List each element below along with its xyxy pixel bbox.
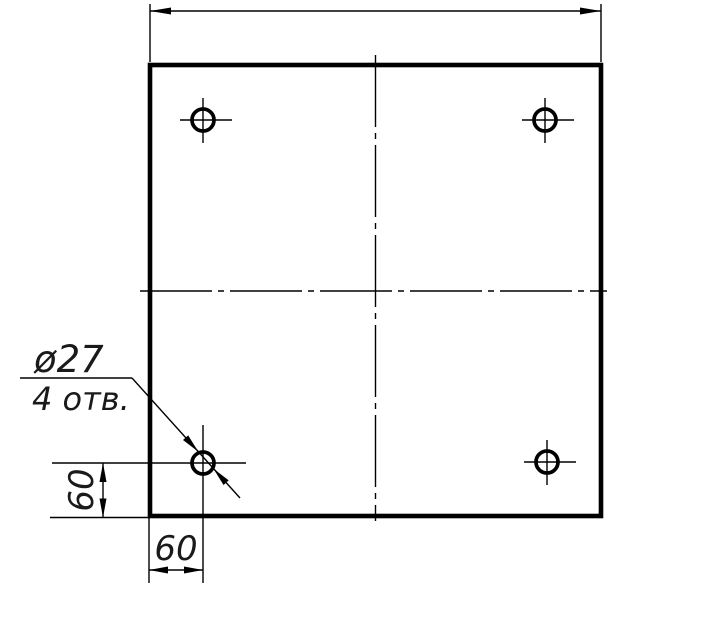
arrowhead-left <box>150 8 171 15</box>
dimension-hole-offset-vertical: 60 <box>50 463 150 518</box>
dimension-value-vertical: 60 <box>62 468 102 511</box>
dimension-overall-width <box>150 4 601 62</box>
hole-diameter-label: ø27 <box>33 338 104 381</box>
arrowhead-right <box>580 8 601 15</box>
hole-count-label: 4 отв. <box>32 380 130 418</box>
plate-drawing: 60 60 ø27 4 отв. <box>0 0 713 631</box>
drawing-sheet: 60 60 ø27 4 отв. <box>0 0 713 631</box>
dimension-hole-offset-horizontal: 60 <box>149 517 203 583</box>
dimension-value-horizontal: 60 <box>154 529 197 569</box>
